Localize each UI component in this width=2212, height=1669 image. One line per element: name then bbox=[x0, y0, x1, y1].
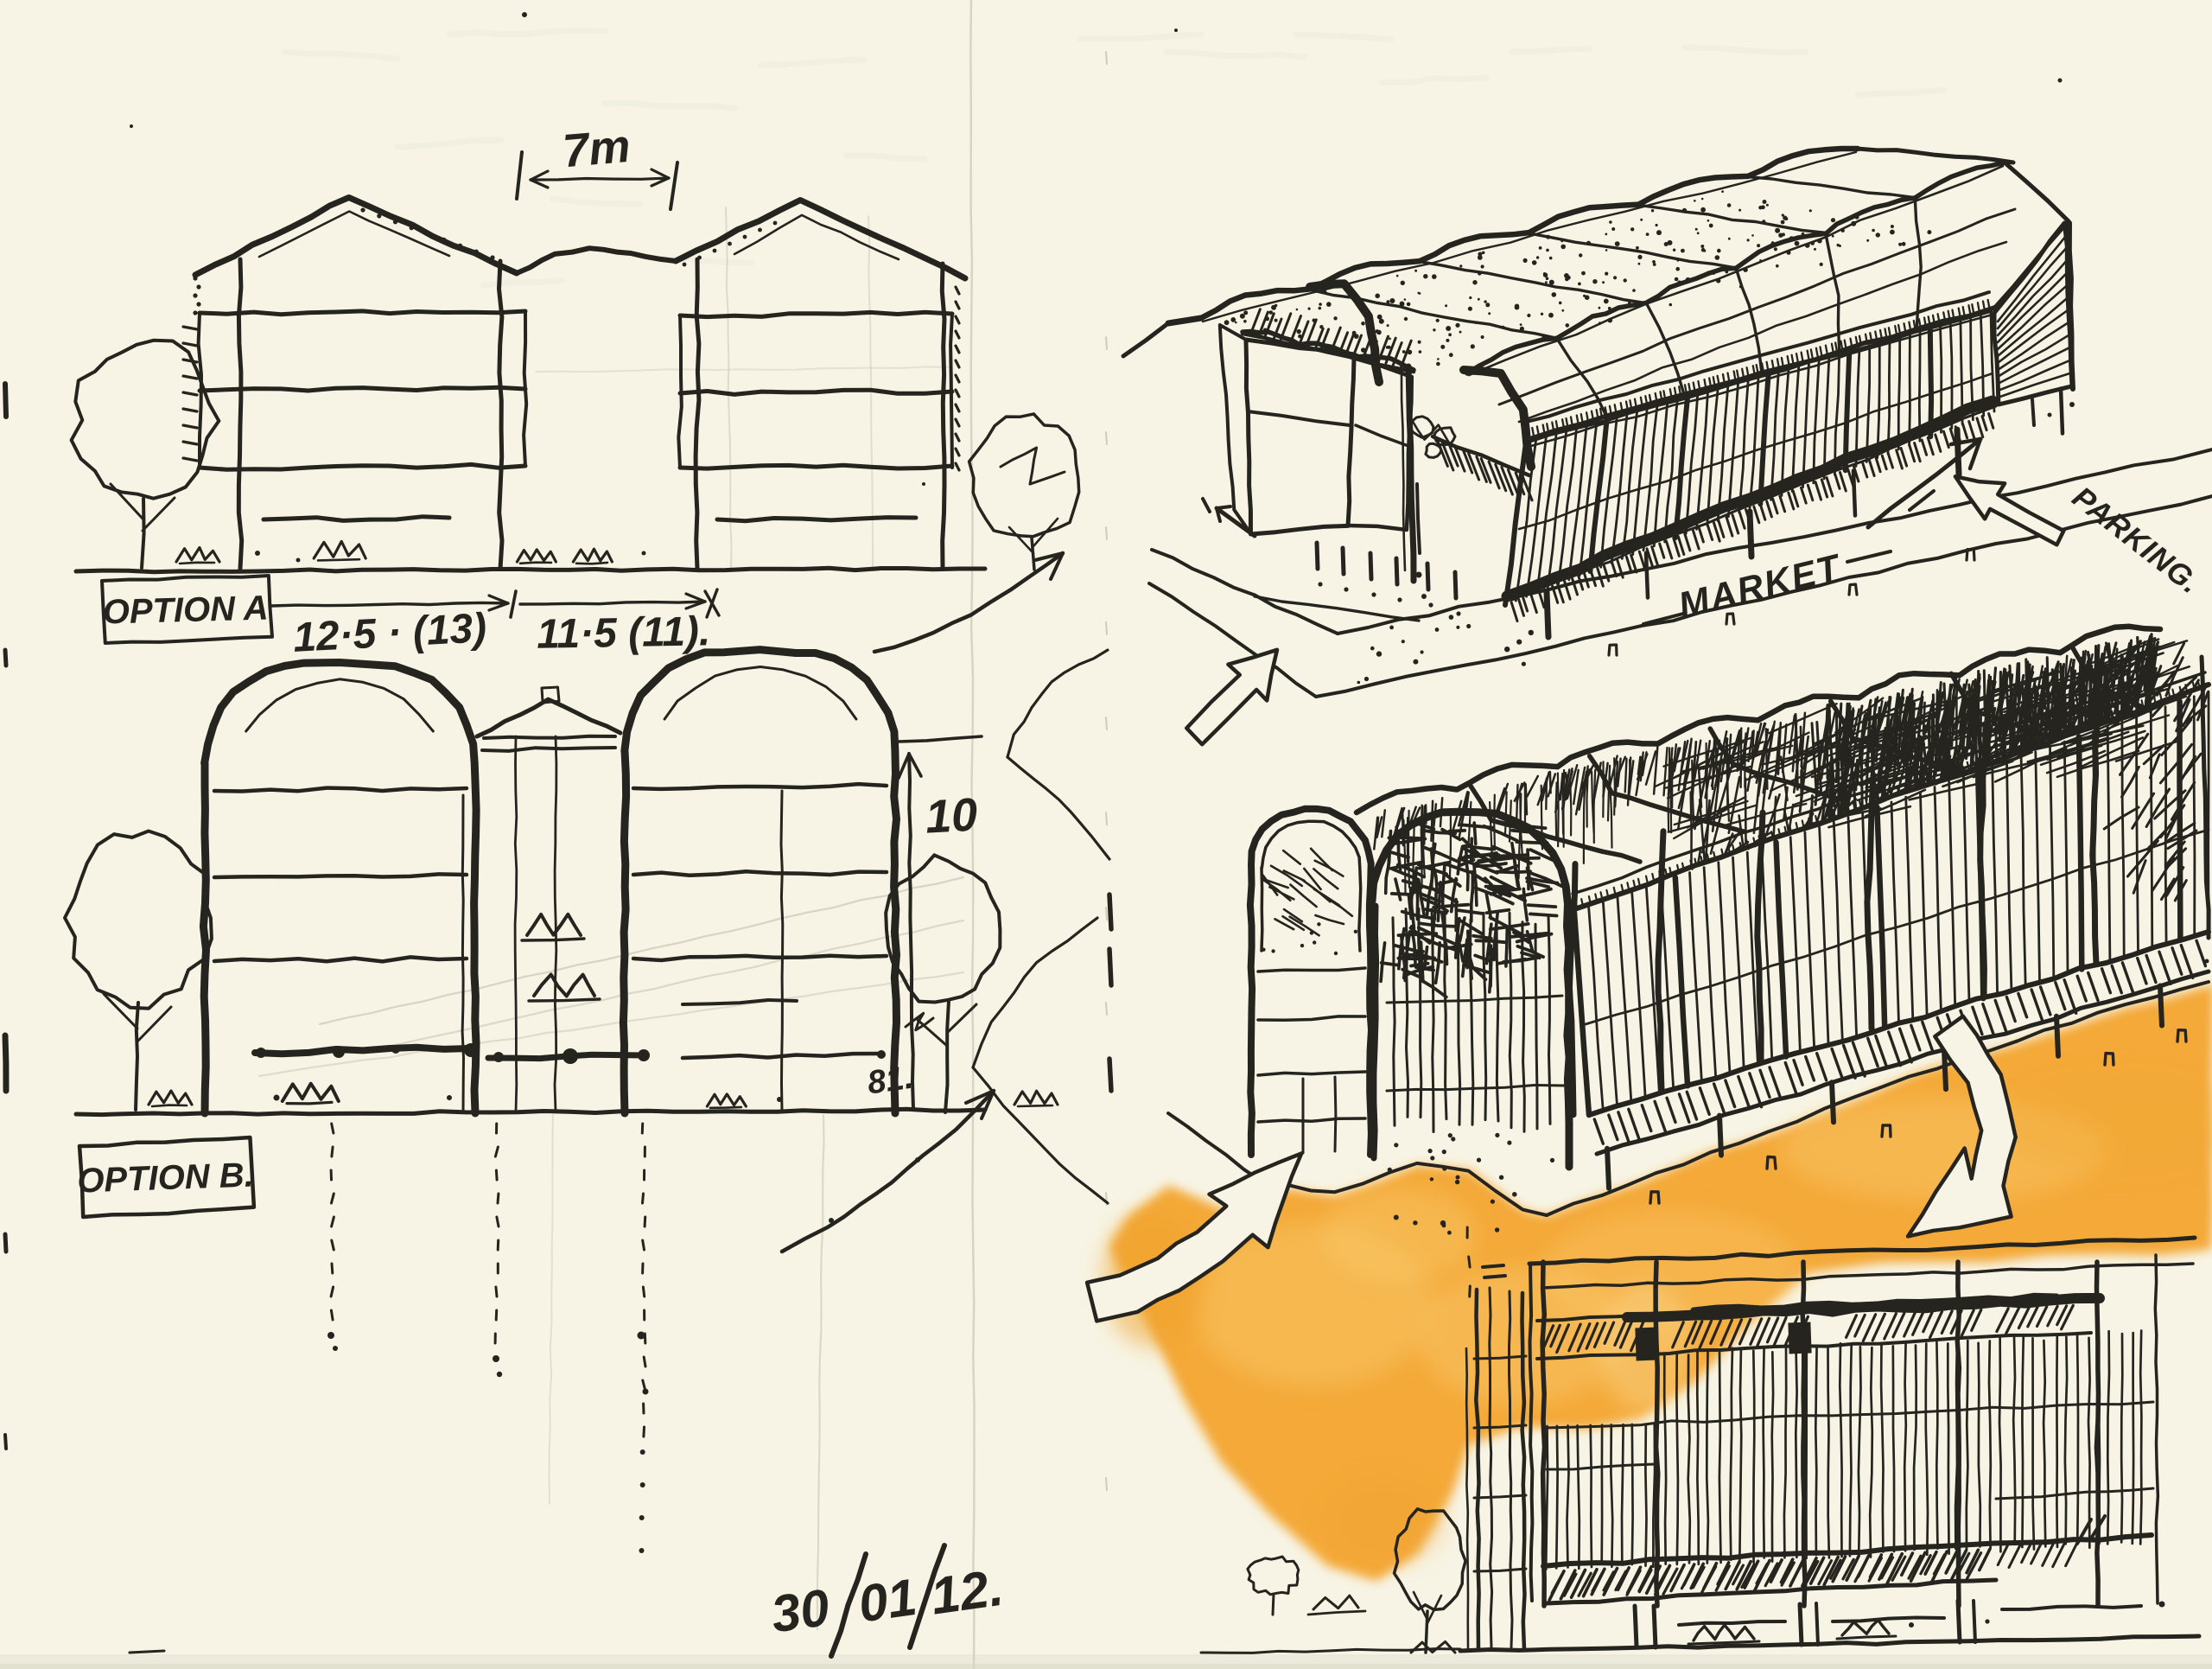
svg-text:7m: 7m bbox=[561, 120, 632, 178]
svg-text:12.: 12. bbox=[927, 1558, 1007, 1626]
svg-text:10: 10 bbox=[924, 788, 978, 843]
svg-text:81.: 81. bbox=[865, 1060, 915, 1102]
svg-text:30: 30 bbox=[767, 1578, 832, 1644]
svg-text:OPTION A: OPTION A bbox=[102, 589, 269, 632]
svg-text:11·5 (11).: 11·5 (11). bbox=[537, 608, 711, 657]
svg-text:OPTION B.: OPTION B. bbox=[77, 1156, 255, 1200]
svg-text:01: 01 bbox=[855, 1568, 919, 1634]
